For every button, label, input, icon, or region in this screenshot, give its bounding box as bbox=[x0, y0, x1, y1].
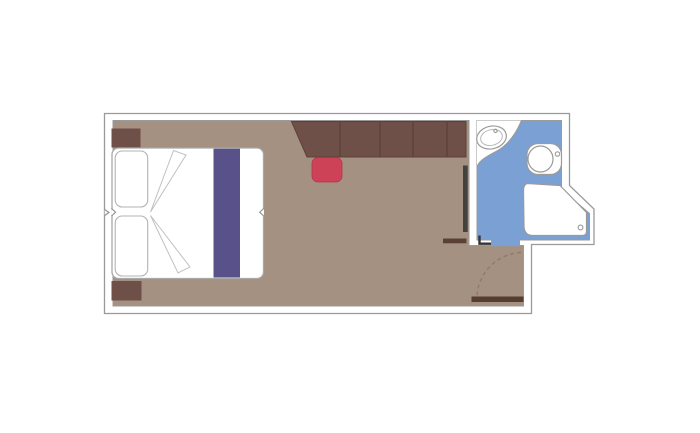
stool bbox=[312, 158, 342, 183]
pillow-top bbox=[115, 151, 148, 207]
shower-tray bbox=[523, 184, 586, 236]
wardrobe-cabinet-row bbox=[292, 122, 467, 158]
cabin-entry-door-leaf bbox=[472, 297, 524, 303]
bathroom-doorway bbox=[491, 239, 520, 246]
bathroom-door-leaf bbox=[443, 239, 467, 244]
cabin-floorplan bbox=[0, 0, 700, 433]
bed-runner bbox=[214, 149, 241, 278]
wardrobe-body bbox=[292, 122, 467, 158]
double-bed bbox=[111, 148, 264, 279]
nightstand-top bbox=[112, 129, 141, 148]
nightstand-bottom bbox=[112, 281, 142, 301]
pillow-bottom bbox=[115, 216, 148, 276]
toilet-bowl bbox=[528, 146, 553, 172]
floorplan-svg bbox=[0, 0, 700, 433]
mirror-strip bbox=[463, 166, 468, 233]
